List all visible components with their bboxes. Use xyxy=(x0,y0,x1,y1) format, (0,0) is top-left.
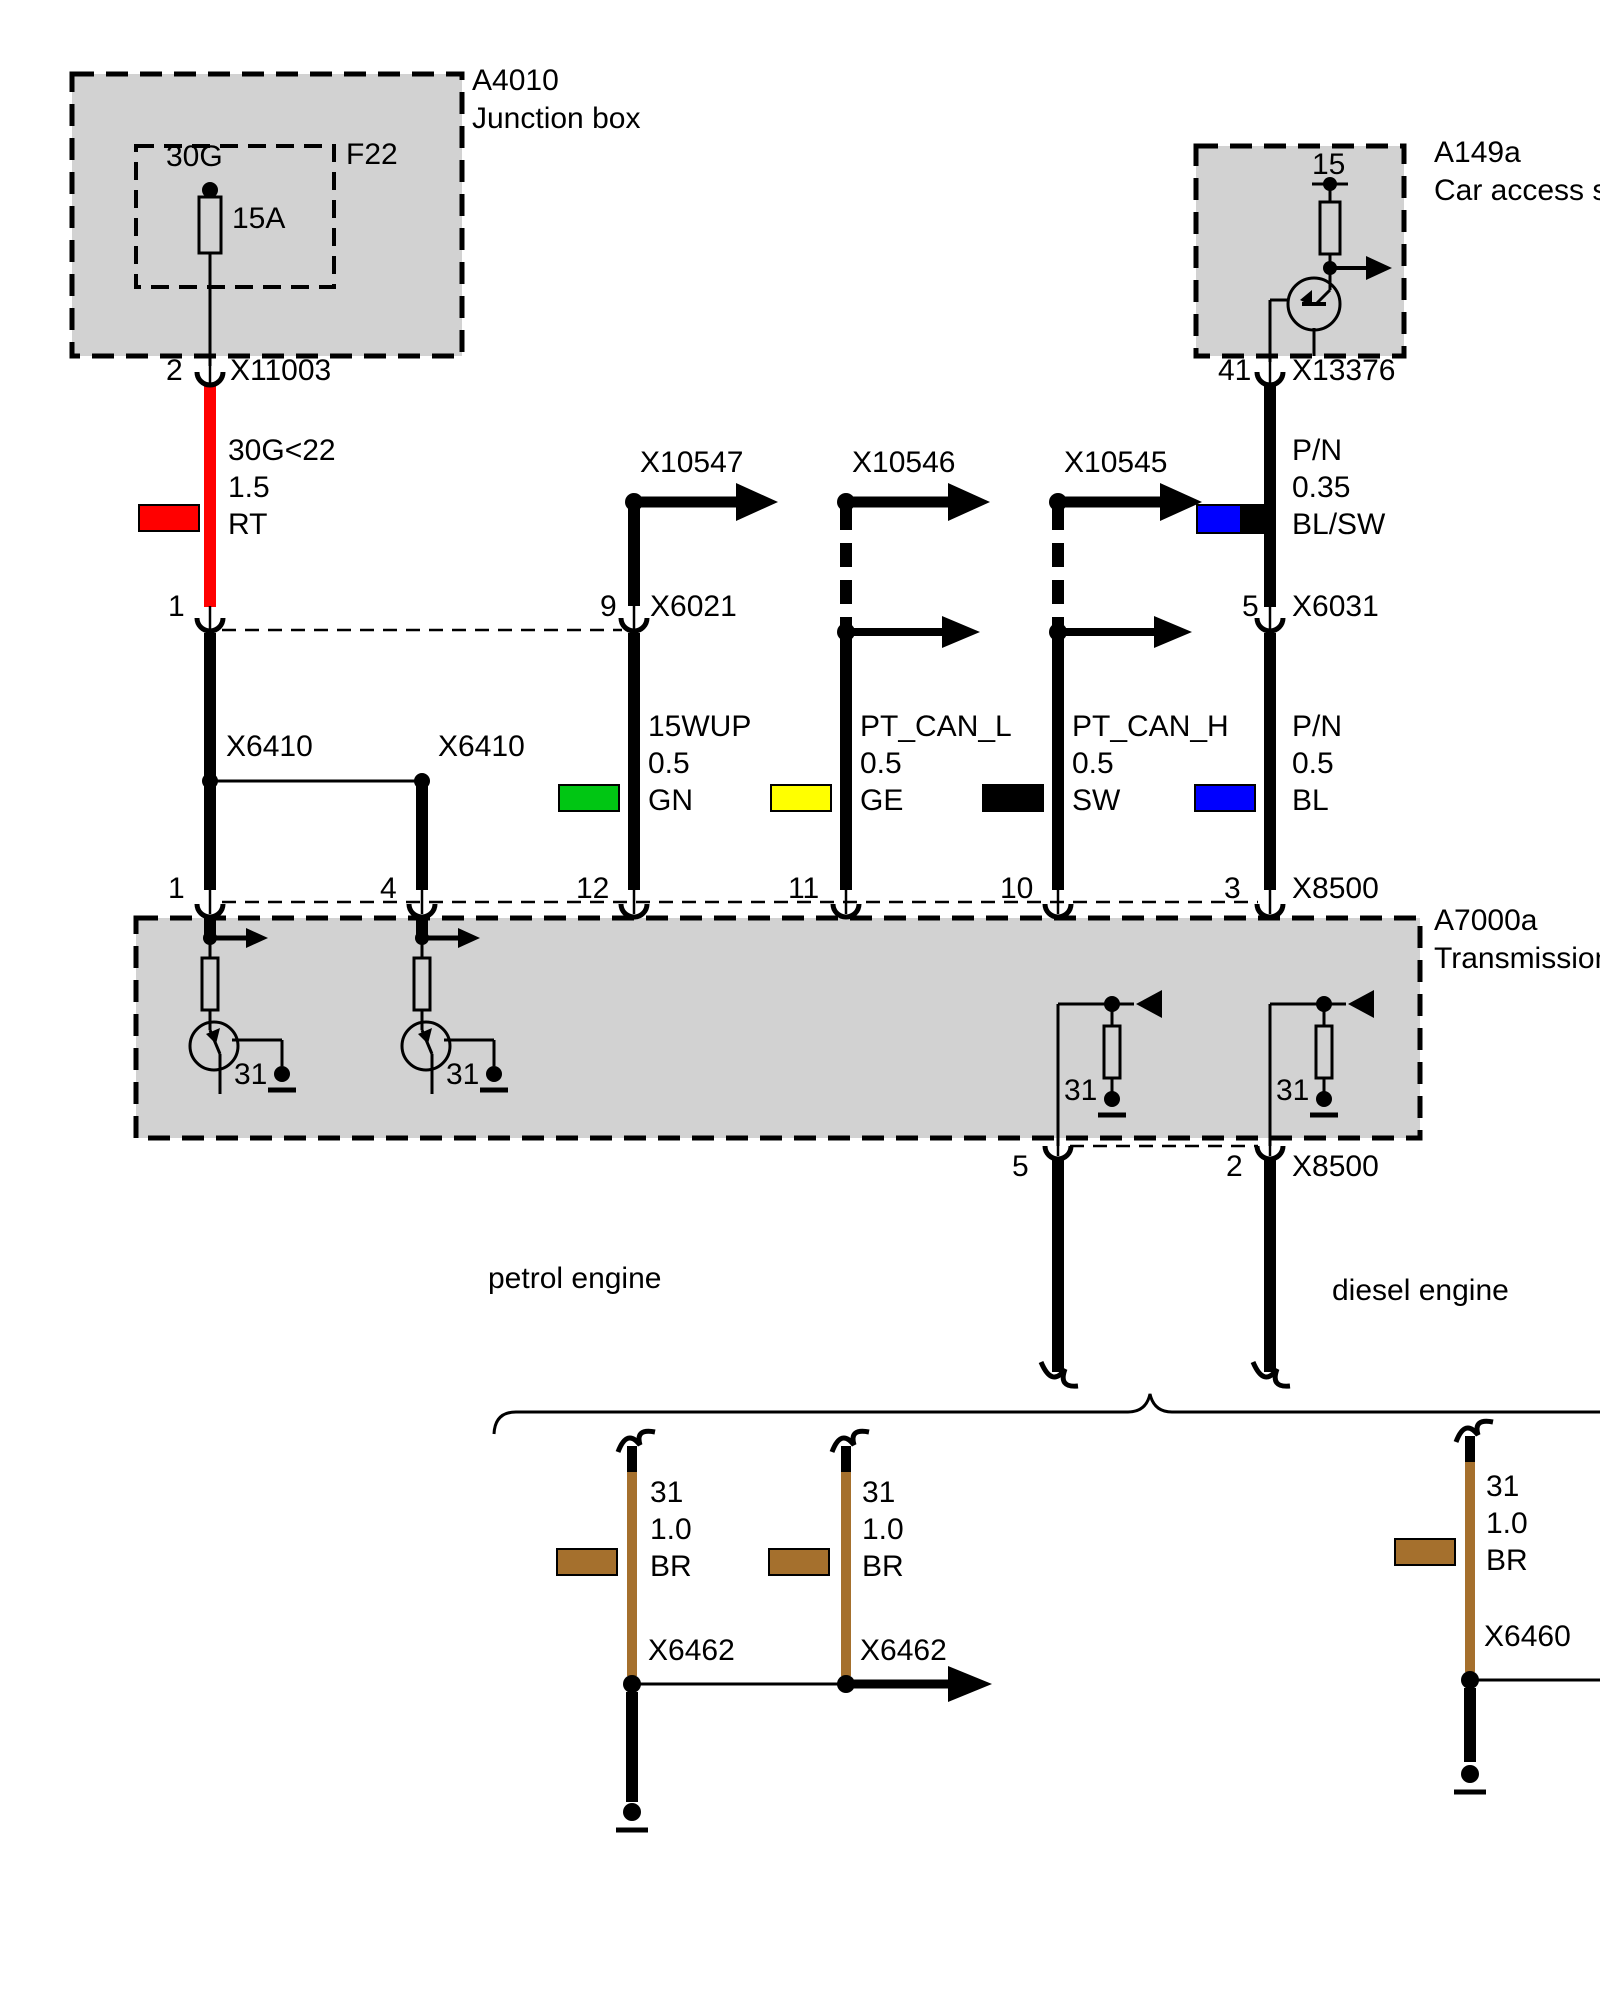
wire-30g-color-code: RT xyxy=(228,510,267,540)
group-brace xyxy=(494,1394,1600,1434)
wire-canl-color-code: GE xyxy=(860,786,903,816)
swatch-br-brown-3 xyxy=(1394,1538,1456,1566)
x6410-label-a: X6410 xyxy=(226,732,313,762)
x6021-label: X6021 xyxy=(650,592,737,622)
ground-31-label-1: 31 xyxy=(234,1060,267,1090)
arrow-x10547 xyxy=(625,483,778,521)
petrol-engine-note: petrol engine xyxy=(488,1264,661,1294)
fuse-terminal-label: 30G xyxy=(166,142,223,172)
x10545-label: X10545 xyxy=(1064,448,1167,478)
diesel-engine-note: diesel engine xyxy=(1332,1276,1509,1306)
x11003-pin: 2 xyxy=(166,356,183,386)
x8500-pin-1: 1 xyxy=(168,874,185,904)
x6031-pin: 5 xyxy=(1242,592,1259,622)
transmission-box-outline xyxy=(136,918,1420,1138)
arrow-can-h-branch xyxy=(1049,616,1192,648)
x8500-pin-10: 10 xyxy=(1000,874,1033,904)
x11003-pin-lower: 1 xyxy=(168,592,185,622)
x8500-pin-4: 4 xyxy=(380,874,397,904)
junction-box-name: Junction box xyxy=(472,104,640,134)
wire-pn035-size: 0.35 xyxy=(1292,473,1350,503)
swatch-bl-blue xyxy=(1194,784,1256,812)
swatch-bl-sw-blue-black xyxy=(1196,504,1264,534)
wire-pn05-circuit: P/N xyxy=(1292,712,1342,742)
x8500-bottom-label: X8500 xyxy=(1292,1152,1379,1182)
ground-31-label-3: 31 xyxy=(1064,1076,1097,1106)
car-access-name: Car access sys xyxy=(1434,176,1600,206)
x6410-label-b: X6410 xyxy=(438,732,525,762)
wire-gnd-a-size: 1.0 xyxy=(650,1515,692,1545)
wire-canl-circuit: PT_CAN_L xyxy=(860,712,1012,742)
wire-30g-circuit: 30G<22 xyxy=(228,436,336,466)
x8500-pin-11: 11 xyxy=(788,874,819,904)
x8500-bottom-pin-5: 5 xyxy=(1012,1152,1029,1182)
wire-gnd-c-size: 1.0 xyxy=(1486,1509,1528,1539)
x11003-label: X11003 xyxy=(230,356,331,386)
transmission-name: Transmission c xyxy=(1434,944,1600,974)
wire-canh-color-code: SW xyxy=(1072,786,1120,816)
x10547-label: X10547 xyxy=(640,448,743,478)
x13376-pin: 41 xyxy=(1218,356,1251,386)
wire-pn05-color-code: BL xyxy=(1292,786,1329,816)
wire-gnd-b-color-code: BR xyxy=(862,1552,904,1582)
swatch-br-brown-2 xyxy=(768,1548,830,1576)
x8500-bottom-pin-2: 2 xyxy=(1226,1152,1243,1182)
wire-15wup-color-code: GN xyxy=(648,786,693,816)
arrow-x10546 xyxy=(837,483,990,521)
x6462-a-label: X6462 xyxy=(648,1636,735,1666)
x8500-top-label: X8500 xyxy=(1292,874,1379,904)
x6031-label: X6031 xyxy=(1292,592,1379,622)
wire-x8500-pin5 xyxy=(1041,1159,1078,1386)
junction-box-id: A4010 xyxy=(472,66,559,96)
wire-canl-size: 0.5 xyxy=(860,749,902,779)
wire-canh-size: 0.5 xyxy=(1072,749,1114,779)
swatch-sw-black xyxy=(982,784,1044,812)
swatch-gn-green xyxy=(558,784,620,812)
wire-pn035-color-code: BL/SW xyxy=(1292,510,1385,540)
schematic-linework xyxy=(0,0,1600,2000)
x13376-label: X13376 xyxy=(1292,356,1395,386)
wire-x8500-pin2 xyxy=(1253,1159,1290,1386)
wire-pn035-circuit: P/N xyxy=(1292,436,1342,466)
wire-canh-circuit: PT_CAN_H xyxy=(1072,712,1229,742)
arrow-x10545 xyxy=(1049,483,1202,521)
x6462-b-label: X6462 xyxy=(860,1636,947,1666)
wire-gnd-c-circuit: 31 xyxy=(1486,1472,1519,1502)
x8500-pin-3: 3 xyxy=(1224,874,1241,904)
wire-15wup-size: 0.5 xyxy=(648,749,690,779)
car-access-id: A149a xyxy=(1434,138,1521,168)
wire-gnd-a-color-code: BR xyxy=(650,1552,692,1582)
ground-31-label-2: 31 xyxy=(446,1060,479,1090)
wire-30g-size: 1.5 xyxy=(228,473,270,503)
splice-x6410 xyxy=(202,773,430,789)
arrow-can-l-branch xyxy=(837,616,980,648)
wire-ground-c xyxy=(1454,1421,1600,1792)
swatch-rt-red xyxy=(138,504,200,532)
swatch-br-brown-1 xyxy=(556,1548,618,1576)
fuse-box-label: F22 xyxy=(346,140,398,170)
transmission-id: A7000a xyxy=(1434,906,1537,936)
x8500-pin-12: 12 xyxy=(576,874,609,904)
ground-31-label-4: 31 xyxy=(1276,1076,1309,1106)
wire-gnd-b-circuit: 31 xyxy=(862,1478,895,1508)
swatch-ge-yellow xyxy=(770,784,832,812)
fuse-rating-label: 15A xyxy=(232,204,285,234)
wire-gnd-b-size: 1.0 xyxy=(862,1515,904,1545)
wire-15wup-circuit: 15WUP xyxy=(648,712,751,742)
wiring-diagram: A4010 Junction box F22 30G 15A A149a Car… xyxy=(0,0,1600,2000)
terminal-15-label: 15 xyxy=(1312,150,1345,180)
wire-gnd-c-color-code: BR xyxy=(1486,1546,1528,1576)
x6021-pin: 9 xyxy=(600,592,617,622)
x6460-label: X6460 xyxy=(1484,1622,1571,1652)
wire-pn05-size: 0.5 xyxy=(1292,749,1334,779)
x10546-label: X10546 xyxy=(852,448,955,478)
wire-gnd-a-circuit: 31 xyxy=(650,1478,683,1508)
swatch-bl-part xyxy=(1198,506,1240,532)
